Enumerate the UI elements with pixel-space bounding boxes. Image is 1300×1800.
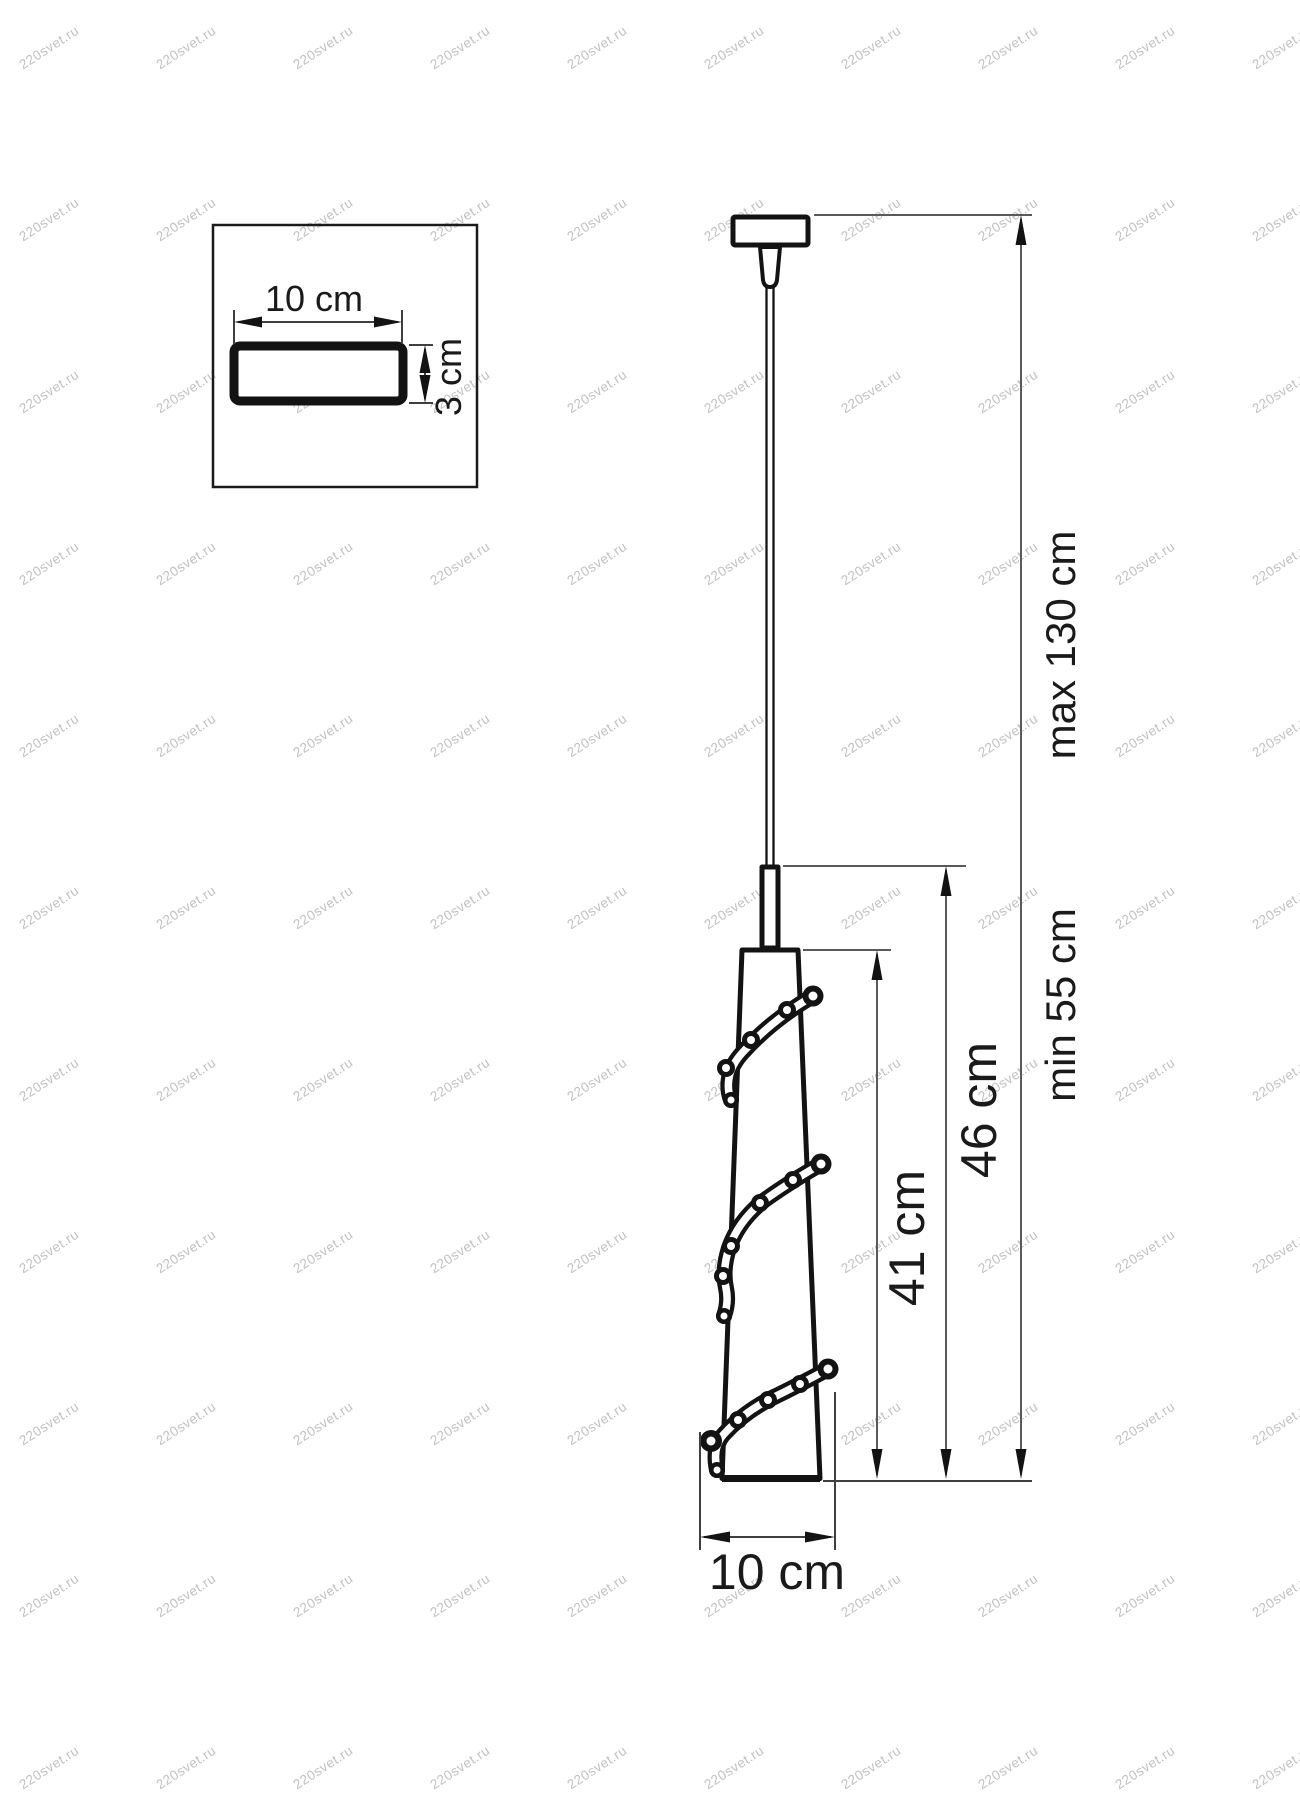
inset-depth-dimension: 3 cm	[409, 338, 469, 416]
inset-width-label: 10 cm	[265, 278, 363, 319]
suspension-max-label: max 130 cm	[1037, 531, 1084, 760]
suspension-min-label: min 55 cm	[1037, 908, 1084, 1102]
dimension-body-height: 46 cm	[941, 866, 1008, 1479]
cord-grip	[760, 247, 780, 287]
inset-canopy-view: 10 cm 3 cm	[213, 225, 477, 487]
body-height-label: 46 cm	[951, 1042, 1007, 1178]
canopy-top-view	[234, 346, 403, 401]
dimension-drawing-page: 220svet.ru220svet.ru220svet.ru220svet.ru…	[0, 0, 1300, 1800]
pendant-lamp-dimension-drawing: 10 cm 3 cm	[0, 0, 1300, 1800]
inset-width-dimension: 10 cm	[234, 278, 402, 344]
shade-height-label: 41 cm	[879, 1170, 935, 1306]
ceiling-canopy	[733, 217, 808, 245]
inset-depth-label: 3 cm	[428, 338, 469, 416]
shade-diameter-label: 10 cm	[709, 1544, 845, 1600]
dimension-shade-height: 41 cm	[872, 950, 936, 1479]
pendant-lamp	[700, 217, 839, 1479]
dimension-suspension-height: min 55 cm max 130 cm	[1016, 215, 1085, 1479]
stem-tube	[762, 867, 778, 948]
